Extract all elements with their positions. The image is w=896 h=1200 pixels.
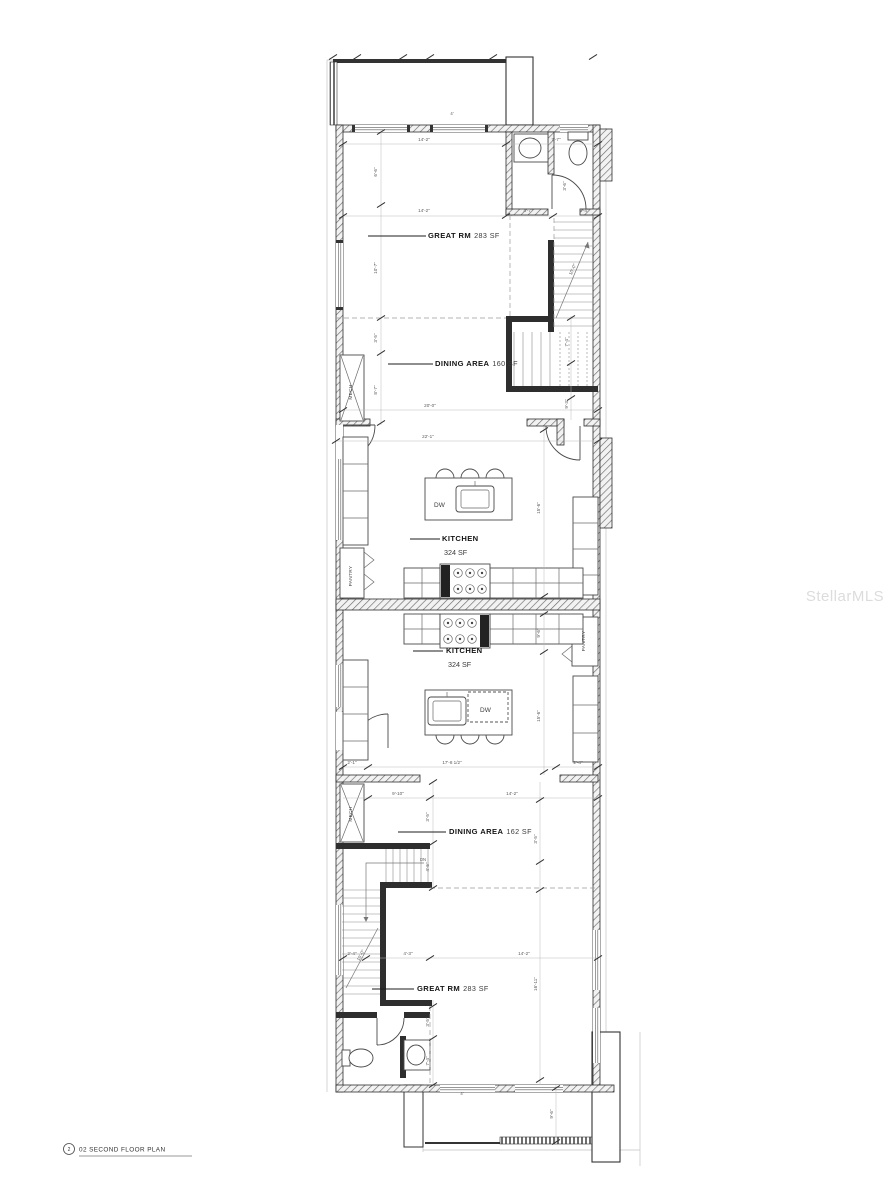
dim: 17'-8 1/2"	[442, 760, 462, 765]
room-label-dining-b: DINING AREA162 SF	[449, 827, 532, 836]
dim: 4'	[460, 1091, 463, 1096]
dim: 4'	[450, 111, 453, 116]
dim: 10'-0"	[568, 263, 577, 276]
party-wall	[336, 599, 600, 610]
dim: 16'-11"	[533, 977, 538, 991]
dim: 20'-0"	[424, 403, 436, 408]
dim: 4'-5"	[425, 862, 430, 872]
detail-number: 2	[68, 1147, 71, 1153]
balcony-upper	[330, 57, 533, 125]
room-area-kitchen-a: 324 SF	[444, 548, 468, 557]
dim: 4'-3"	[403, 951, 413, 956]
balcony-lower	[404, 1032, 620, 1162]
kitchen-a	[343, 437, 598, 598]
tall-cabinets	[573, 676, 598, 762]
dim: 7'-4"	[564, 337, 569, 347]
toilet-icon	[569, 141, 587, 165]
balcony-railing	[330, 62, 337, 125]
dim: 8'-7"	[373, 385, 378, 395]
stair-direction-arrow	[585, 242, 590, 249]
dim: 3'-5"	[425, 812, 430, 822]
floor-plan-drawing: GREAT RM283 SF DINING AREA160 SF KITCHEN…	[0, 0, 896, 1200]
dim: 6'-6"	[373, 167, 378, 177]
appliance-label-dw-a: DW	[434, 502, 446, 509]
dim: 9'-3"	[564, 399, 569, 409]
door-swing-bath-b	[377, 1018, 404, 1045]
dim: 7'-4"	[425, 1056, 430, 1066]
pier	[404, 1085, 423, 1147]
toilet-tank	[568, 132, 588, 140]
bifold-door	[364, 552, 374, 590]
dim: 7'-7"	[551, 137, 561, 142]
column	[506, 57, 533, 125]
dim: 9'-10"	[392, 791, 404, 796]
stair-direction-arrow	[364, 917, 369, 922]
drawing-title: 02 SECOND FLOOR PLAN	[79, 1147, 166, 1154]
tall-cabinets	[343, 660, 368, 760]
dim: 14'-2"	[506, 791, 518, 796]
toilet-icon	[349, 1049, 373, 1067]
appliance-label-dw-b: DW	[480, 707, 492, 714]
room-label-kitchen-a: KITCHEN	[442, 534, 479, 543]
sink-icon	[407, 1045, 425, 1065]
dim: 10'-7"	[373, 262, 378, 274]
dim: 3'-5"	[533, 834, 538, 844]
room-area-kitchen-b: 324 SF	[448, 660, 472, 669]
dim: 9'-6"	[549, 1109, 554, 1119]
kitchen-b	[343, 614, 598, 762]
closet-label-pantry-a: PANTRY	[348, 565, 354, 586]
room-label-kitchen-b: KITCHEN	[446, 646, 483, 655]
dim: 22'-1"	[422, 434, 434, 439]
watermark: StellarMLS	[806, 588, 884, 605]
dim: 14'-2"	[518, 951, 530, 956]
door-swing-bath-a	[552, 175, 586, 209]
dim: 3'-5"	[425, 1017, 430, 1027]
floor-plan-sheet: GREAT RM283 SF DINING AREA160 SF KITCHEN…	[0, 0, 896, 1200]
dim: 15'-6"	[536, 502, 541, 514]
balcony-railing	[500, 1137, 593, 1144]
dim: 9'-6"	[536, 628, 541, 638]
dim: 14'-2"	[418, 208, 430, 213]
closet-label-mech-a: MECH	[348, 384, 354, 400]
dim: 2'-4"	[347, 951, 357, 956]
dim: 14'-2"	[418, 137, 430, 142]
stair-dn-label: DN	[420, 857, 426, 862]
dim: 4'-7"	[523, 208, 533, 213]
closet-label-pantry-b: PANTRY	[581, 630, 587, 651]
dim: 2'-4"	[579, 208, 589, 213]
room-label-great-rm-b: GREAT RM283 SF	[417, 984, 489, 993]
title-block: 2 02 SECOND FLOOR PLAN	[64, 1144, 193, 1157]
room-label-great-rm-a: GREAT RM283 SF	[428, 231, 500, 240]
sink-icon	[519, 138, 541, 158]
dim: 15'-6"	[536, 710, 541, 722]
dim: 2'-1"	[347, 760, 357, 765]
dim: 2'-4"	[573, 760, 583, 765]
room-label-dining-a: DINING AREA160 SF	[435, 359, 518, 368]
dim: 3'-5"	[373, 333, 378, 343]
dim: 3'-6"	[562, 181, 567, 191]
closet-label-mech-b: MECH	[348, 806, 354, 822]
